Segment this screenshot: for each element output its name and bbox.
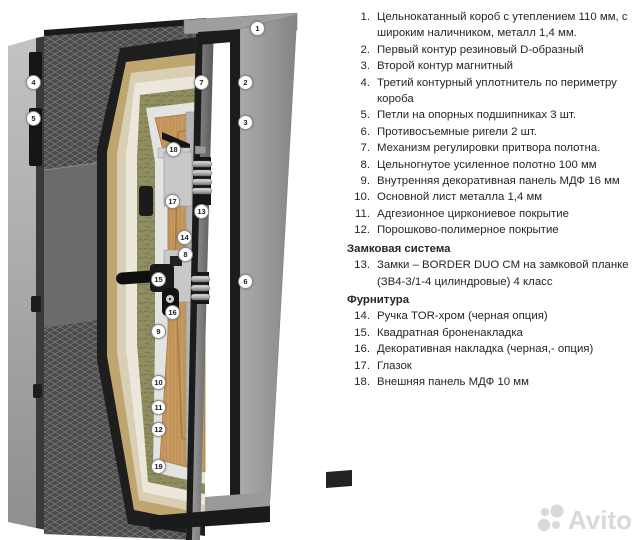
spec-item-text: Глазок	[377, 358, 629, 374]
callout-9: 9	[151, 324, 166, 339]
spec-item-number: 15.	[347, 325, 377, 341]
spec-item: 18.Внешняя панель МДФ 10 мм	[347, 374, 629, 390]
spec-item-number: 11.	[347, 206, 377, 222]
spec-item-number: 1.	[347, 9, 377, 42]
screenshot-root: 12345678910111213141516171819 1.Цельнока…	[0, 0, 634, 540]
spec-item-text: Третий контурный уплотнитель по периметр…	[377, 75, 629, 108]
callout-13: 13	[194, 204, 209, 219]
spec-item-text: Петли на опорных подшипниках 3 шт.	[377, 107, 629, 123]
spec-item-number: 10.	[347, 189, 377, 205]
callout-8: 8	[178, 247, 193, 262]
callout-4: 4	[26, 75, 41, 90]
frame-seal-strip	[230, 29, 240, 500]
spec-item-text: Второй контур магнитный	[377, 58, 629, 74]
callout-19: 19	[151, 459, 166, 474]
spec-item: 13.Замки – BORDER DUO CM на замковой пла…	[347, 257, 629, 290]
spec-item-text: Первый контур резиновый D-образный	[377, 42, 629, 58]
spec-item: 17.Глазок	[347, 358, 629, 374]
door-diagram: 12345678910111213141516171819	[0, 0, 360, 540]
spec-item-text: Внутренняя декоративная панель МДФ 16 мм	[377, 173, 629, 189]
spec-item-number: 5.	[347, 107, 377, 123]
callout-18: 18	[166, 142, 181, 157]
spec-item-number: 4.	[347, 75, 377, 108]
spec-item-number: 6.	[347, 124, 377, 140]
spec-item-text: Квадратная броненакладка	[377, 325, 629, 341]
spec-section-header: Фурнитура	[347, 292, 629, 308]
callout-11: 11	[151, 400, 166, 415]
callout-14: 14	[177, 230, 192, 245]
callout-10: 10	[151, 375, 166, 390]
spec-item-number: 13.	[347, 257, 377, 290]
spec-list: 1.Цельнокатанный короб с утеплением 110 …	[347, 9, 629, 390]
spec-item-text: Декоративная накладка (черная,- опция)	[377, 341, 629, 357]
spec-item-text: Основной лист металла 1,4 мм	[377, 189, 629, 205]
peephole	[139, 186, 153, 216]
callout-3: 3	[238, 115, 253, 130]
spec-item-text: Замки – BORDER DUO CM на замковой планке…	[377, 257, 629, 290]
callout-5: 5	[26, 111, 41, 126]
spec-item-text: Механизм регулировки притвора полотна.	[377, 140, 629, 156]
spec-section-header: Замковая система	[347, 241, 629, 257]
spec-item: 16.Декоративная накладка (черная,- опция…	[347, 341, 629, 357]
spec-item-text: Противосъемные ригели 2 шт.	[377, 124, 629, 140]
spec-item-number: 17.	[347, 358, 377, 374]
callout-17: 17	[165, 194, 180, 209]
spec-item: 11.Адгезионное циркониевое покрытие	[347, 206, 629, 222]
avito-watermark: Avito	[536, 503, 632, 537]
spec-item: 4.Третий контурный уплотнитель по периме…	[347, 75, 629, 108]
spec-item: 7.Механизм регулировки притвора полотна.	[347, 140, 629, 156]
spec-item-number: 9.	[347, 173, 377, 189]
spec-item: 14.Ручка TOR-хром (черная опция)	[347, 308, 629, 324]
spec-item: 6.Противосъемные ригели 2 шт.	[347, 124, 629, 140]
spec-item: 10.Основной лист металла 1,4 мм	[347, 189, 629, 205]
face-inset-panel	[44, 163, 97, 328]
spec-item-number: 7.	[347, 140, 377, 156]
callout-2: 2	[238, 75, 253, 90]
avito-watermark-text: Avito	[568, 507, 632, 533]
spec-item: 5.Петли на опорных подшипниках 3 шт.	[347, 107, 629, 123]
spec-item-number: 14.	[347, 308, 377, 324]
spec-item-text: Цельнокатанный короб с утеплением 110 мм…	[377, 9, 629, 42]
avito-logo-icon	[536, 503, 568, 537]
spec-item-text: Внешняя панель МДФ 10 мм	[377, 374, 629, 390]
spec-item: 3.Второй контур магнитный	[347, 58, 629, 74]
spec-item-text: Цельногнутое усиленное полотно 100 мм	[377, 157, 629, 173]
frame-foot	[326, 470, 352, 488]
spec-item-text: Ручка TOR-хром (черная опция)	[377, 308, 629, 324]
spec-item-number: 8.	[347, 157, 377, 173]
spec-item: 12.Порошково-полимерное покрытие	[347, 222, 629, 238]
spec-item: 8.Цельногнутое усиленное полотно 100 мм	[347, 157, 629, 173]
spec-item: 1.Цельнокатанный короб с утеплением 110 …	[347, 9, 629, 42]
spec-item-text: Адгезионное циркониевое покрытие	[377, 206, 629, 222]
spec-item-number: 3.	[347, 58, 377, 74]
callout-12: 12	[151, 422, 166, 437]
callout-6: 6	[238, 274, 253, 289]
spec-item-number: 18.	[347, 374, 377, 390]
spec-item-text: Порошково-полимерное покрытие	[377, 222, 629, 238]
spec-item: 9.Внутренняя декоративная панель МДФ 16 …	[347, 173, 629, 189]
callout-1: 1	[250, 21, 265, 36]
spec-item-number: 12.	[347, 222, 377, 238]
spec-item: 2.Первый контур резиновый D-образный	[347, 42, 629, 58]
callout-15: 15	[151, 272, 166, 287]
door-diagram-svg	[0, 0, 360, 540]
spec-item: 15.Квадратная броненакладка	[347, 325, 629, 341]
spec-item-number: 2.	[347, 42, 377, 58]
callout-16: 16	[165, 305, 180, 320]
callout-7: 7	[194, 75, 209, 90]
spec-item-number: 16.	[347, 341, 377, 357]
